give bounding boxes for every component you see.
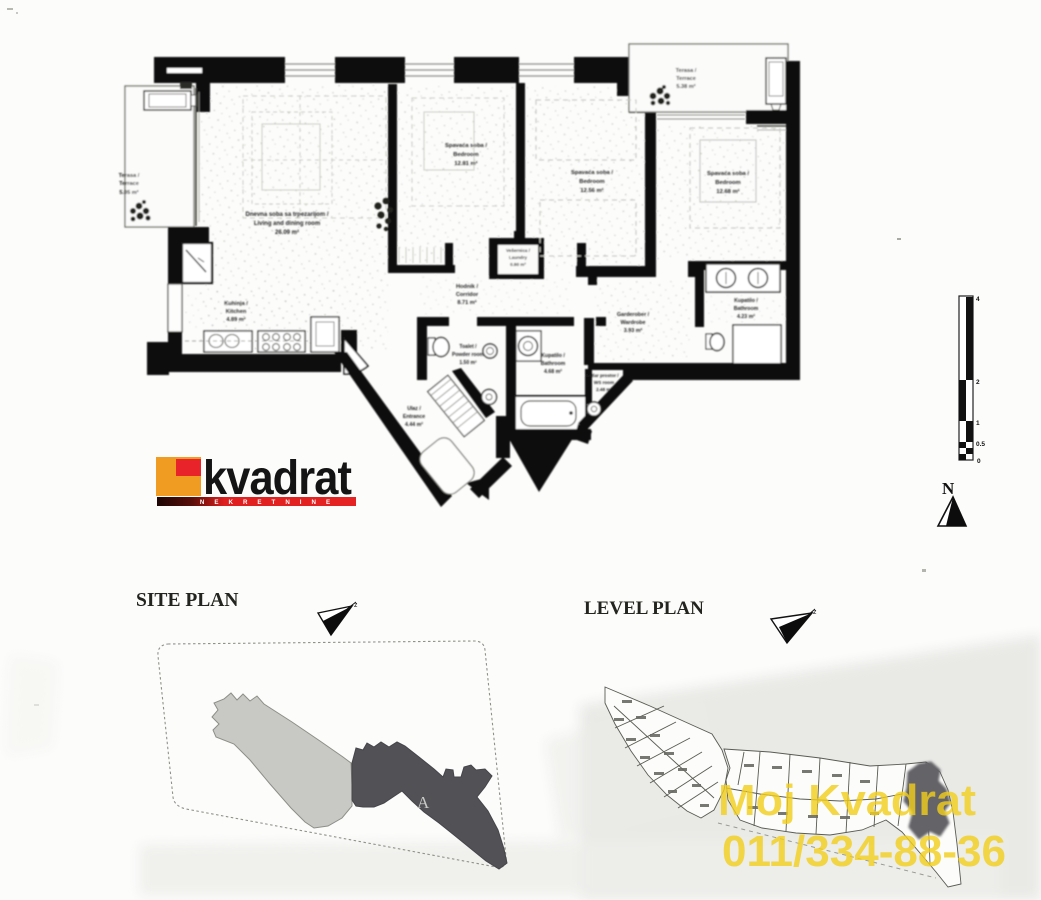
svg-text:Kupatilo /: Kupatilo / <box>734 298 758 304</box>
svg-text:5.38 m²: 5.38 m² <box>676 83 695 90</box>
svg-text:12.68 m²: 12.68 m² <box>716 188 739 195</box>
svg-text:0.5: 0.5 <box>976 441 985 448</box>
svg-text:Ulaz /: Ulaz / <box>407 406 421 412</box>
svg-text:Bedroom: Bedroom <box>579 179 604 185</box>
svg-text:LEVEL PLAN: LEVEL PLAN <box>584 598 704 619</box>
svg-text:Terrace: Terrace <box>676 76 696 82</box>
svg-text:Kitchen: Kitchen <box>226 309 247 315</box>
svg-text:Bathroom: Bathroom <box>734 306 759 312</box>
svg-text:Bedroom: Bedroom <box>715 180 740 186</box>
svg-text:Vešernica /: Vešernica / <box>506 248 531 253</box>
svg-text:Bathroom: Bathroom <box>541 361 566 367</box>
svg-text:12.81 m²: 12.81 m² <box>454 160 477 167</box>
svg-text:Terasa /: Terasa / <box>119 173 140 179</box>
svg-text:1: 1 <box>976 420 980 427</box>
svg-text:SITE PLAN: SITE PLAN <box>136 590 238 611</box>
svg-text:Kotlar prostor /: Kotlar prostor / <box>585 373 619 378</box>
svg-text:Hodnik /: Hodnik / <box>456 284 479 290</box>
svg-text:Spavaća soba /: Spavaća soba / <box>571 170 613 176</box>
svg-text:Entrance: Entrance <box>403 414 425 420</box>
svg-text:z: z <box>813 609 817 616</box>
svg-text:NEKRETNINE: NEKRETNINE <box>200 499 340 506</box>
svg-text:12.56 m²: 12.56 m² <box>580 187 603 194</box>
svg-text:Toalet /: Toalet / <box>459 344 477 350</box>
svg-text:Kuhinja /: Kuhinja / <box>224 301 248 307</box>
svg-text:Kupatilo /: Kupatilo / <box>541 353 565 359</box>
svg-text:Terasa /: Terasa / <box>676 68 697 74</box>
svg-text:4.89 m²: 4.89 m² <box>226 316 245 323</box>
svg-text:Bedroom: Bedroom <box>453 152 478 158</box>
svg-text:2.48 m²: 2.48 m² <box>596 387 612 392</box>
svg-text:Laundry: Laundry <box>509 255 528 260</box>
svg-text:0: 0 <box>977 458 981 465</box>
svg-text:1.50 m²: 1.50 m² <box>459 360 477 366</box>
svg-text:Powder room: Powder room <box>452 352 485 358</box>
svg-text:0.80 m²: 0.80 m² <box>510 262 526 267</box>
svg-text:4: 4 <box>976 296 980 303</box>
svg-text:A: A <box>417 793 430 812</box>
svg-text:Spavaća soba /: Spavaća soba / <box>445 143 487 149</box>
svg-text:3.93 m²: 3.93 m² <box>624 328 643 334</box>
svg-text:N: N <box>942 479 955 498</box>
svg-text:2: 2 <box>976 379 980 386</box>
svg-text:Garderober /: Garderober / <box>617 312 650 318</box>
svg-text:011/334-88-36: 011/334-88-36 <box>722 827 1006 876</box>
svg-text:Corridor: Corridor <box>456 292 479 298</box>
svg-text:WS room: WS room <box>594 380 614 385</box>
svg-text:4.68 m²: 4.68 m² <box>544 369 562 375</box>
svg-text:Dnevna soba sa trpezarijom /: Dnevna soba sa trpezarijom / <box>245 212 328 218</box>
svg-text:Living and dining room: Living and dining room <box>254 221 320 227</box>
svg-text:Wardrobe: Wardrobe <box>621 320 646 326</box>
svg-text:8.71 m²: 8.71 m² <box>457 299 476 306</box>
svg-text:Terrace: Terrace <box>119 181 139 187</box>
svg-text:Moj Kvadrat: Moj Kvadrat <box>718 776 976 825</box>
svg-text:z: z <box>354 602 358 609</box>
svg-text:4.23 m²: 4.23 m² <box>737 314 755 320</box>
svg-text:5.05 m²: 5.05 m² <box>119 189 138 196</box>
svg-text:4.44 m²: 4.44 m² <box>405 422 423 428</box>
svg-text:Spavaća soba /: Spavaća soba / <box>707 171 749 177</box>
svg-text:26.09 m²: 26.09 m² <box>275 229 299 236</box>
